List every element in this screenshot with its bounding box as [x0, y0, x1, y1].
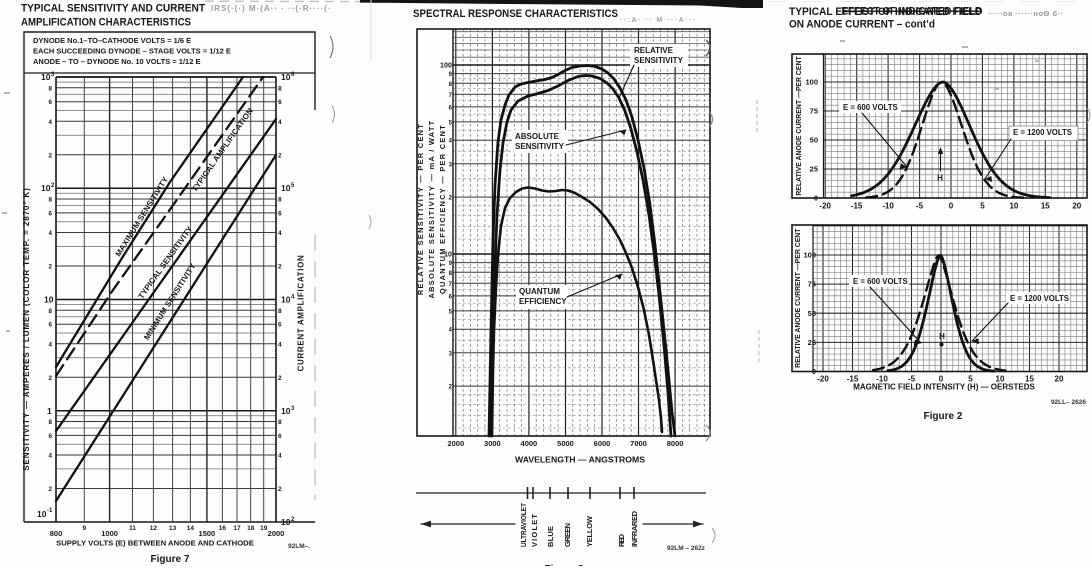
- svg-text:2: 2: [278, 264, 282, 271]
- svg-text:8: 8: [278, 197, 282, 204]
- svg-text:2000: 2000: [447, 439, 464, 448]
- svg-text:CURRENT AMPLIFICATION: CURRENT AMPLIFICATION: [297, 255, 306, 372]
- svg-text:TYPICAL SENSITIVITY AND CURREN: TYPICAL SENSITIVITY AND CURRENT: [21, 3, 205, 15]
- svg-text:100: 100: [803, 251, 816, 260]
- svg-text:9: 9: [82, 525, 86, 532]
- svg-text:8000: 8000: [667, 439, 684, 448]
- svg-text:2: 2: [49, 264, 53, 271]
- svg-text:6: 6: [49, 210, 53, 217]
- svg-text:2: 2: [278, 375, 282, 382]
- svg-text:92LL– 2626: 92LL– 2626: [1051, 399, 1086, 406]
- svg-text:0: 0: [814, 194, 818, 203]
- svg-text:ABSOLUTE: ABSOLUTE: [515, 132, 560, 141]
- svg-text:-20: -20: [817, 375, 829, 384]
- svg-text:ON ANODE CURRENT – cont’d: ON ANODE CURRENT – cont’d: [789, 19, 935, 31]
- svg-text:4: 4: [278, 453, 282, 460]
- svg-text:2000: 2000: [268, 529, 285, 538]
- svg-text:-10: -10: [882, 202, 894, 211]
- svg-text:ABSOLUTE SENSITIVITY — mA /: ABSOLUTE SENSITIVITY — mA / WATT: [427, 119, 436, 298]
- svg-text:8: 8: [49, 308, 53, 315]
- svg-text:17: 17: [233, 525, 241, 532]
- svg-text:10: 10: [281, 183, 291, 193]
- svg-text:2: 2: [49, 152, 53, 159]
- svg-text:RELATIVE SENSITIVITY — PER: RELATIVE SENSITIVITY — PER CENT: [416, 123, 425, 295]
- svg-text:RELATIVE: RELATIVE: [634, 46, 674, 55]
- svg-text:10: 10: [44, 295, 54, 305]
- svg-text:DYNODE No.1–TO–CATHODE VOLTS: DYNODE No.1–TO–CATHODE VOLTS = 1/6 E: [33, 36, 191, 45]
- svg-text:6: 6: [49, 433, 53, 440]
- svg-text:E = 1200 VOLTS: E = 1200 VOLTS: [1010, 294, 1069, 303]
- svg-text:-15: -15: [851, 202, 863, 211]
- svg-text:8: 8: [49, 85, 53, 92]
- svg-text:75: 75: [810, 107, 818, 116]
- svg-text:6: 6: [278, 322, 282, 329]
- svg-text:EFFICIENCY: EFFICIENCY: [519, 297, 567, 306]
- svg-text:4: 4: [278, 341, 282, 348]
- svg-text:8: 8: [278, 419, 282, 426]
- svg-text:4: 4: [49, 341, 53, 348]
- svg-text:15: 15: [1041, 202, 1050, 211]
- svg-text:25: 25: [810, 165, 818, 174]
- svg-text:-5: -5: [916, 202, 924, 211]
- svg-text:19: 19: [260, 525, 268, 532]
- svg-text:SENSITIVITY: SENSITIVITY: [634, 56, 684, 65]
- svg-text:H: H: [939, 332, 945, 341]
- svg-text:20: 20: [1055, 375, 1064, 384]
- svg-text:4000: 4000: [521, 439, 538, 448]
- svg-text:ULTRAVIOLET: ULTRAVIOLET: [519, 503, 528, 547]
- svg-text:5: 5: [980, 202, 985, 211]
- svg-text:10: 10: [1009, 202, 1018, 211]
- svg-text:6: 6: [278, 433, 282, 440]
- svg-text:RELATIVE ANODE CURRENT —PER CE: RELATIVE ANODE CURRENT —PER CENT: [795, 228, 802, 368]
- svg-text:0: 0: [949, 202, 954, 211]
- svg-text:10: 10: [281, 406, 291, 416]
- svg-text:25: 25: [808, 338, 816, 347]
- svg-text:8: 8: [49, 419, 53, 426]
- svg-text:·····оя ······ноΘ б··: ·····оя ······ноΘ б··: [988, 9, 1064, 18]
- svg-text:YELLOW: YELLOW: [585, 515, 594, 547]
- svg-text:ANODE – TO – DYNODE No. 10 V: ANODE – TO – DYNODE No. 10 VOLTS = 1/12 …: [33, 57, 200, 66]
- svg-text:10: 10: [281, 72, 291, 82]
- svg-text:1000: 1000: [101, 529, 118, 538]
- svg-text:4: 4: [278, 119, 282, 126]
- svg-text:11: 11: [129, 525, 136, 532]
- svg-text:10: 10: [41, 72, 51, 82]
- svg-text:4: 4: [278, 230, 282, 237]
- svg-text:0: 0: [812, 367, 816, 376]
- svg-text:8: 8: [49, 197, 53, 204]
- svg-text:··:A· ·· M ···A···: ··:A· ·· M ···A···: [620, 17, 697, 24]
- svg-text:3000: 3000: [484, 439, 501, 448]
- svg-text:2: 2: [49, 375, 53, 382]
- svg-text:13: 13: [169, 525, 177, 532]
- svg-text:E = 1200 VOLTS: E = 1200 VOLTS: [1013, 128, 1072, 137]
- svg-text:16: 16: [219, 525, 227, 532]
- svg-text:2: 2: [278, 152, 282, 159]
- svg-text:BLUE: BLUE: [546, 526, 555, 547]
- svg-text:1: 1: [47, 406, 52, 416]
- svg-text:4: 4: [49, 119, 53, 126]
- svg-text:Figure 7: Figure 7: [151, 554, 190, 565]
- svg-text:6: 6: [278, 210, 282, 217]
- svg-text:-1: -1: [47, 508, 53, 514]
- svg-text:WAVELENGTH — ANGSTROMS: WAVELENGTH — ANGSTROMS: [515, 455, 645, 465]
- svg-text:6: 6: [278, 99, 282, 106]
- svg-text:H: H: [937, 174, 943, 183]
- svg-text:EACH SUCCEEDING DYNODE – STA: EACH SUCCEEDING DYNODE – STAGE VOLTS = 1…: [33, 47, 231, 56]
- svg-text:8: 8: [278, 85, 282, 92]
- svg-text:5000: 5000: [557, 439, 574, 448]
- svg-text:2: 2: [278, 486, 282, 493]
- svg-text:92LM–.: 92LM–.: [288, 543, 310, 550]
- svg-text:7000: 7000: [630, 439, 647, 448]
- svg-text:RED: RED: [617, 533, 626, 547]
- svg-text:2: 2: [49, 486, 53, 493]
- svg-text:10: 10: [37, 509, 47, 519]
- svg-text:100: 100: [440, 61, 452, 70]
- svg-text:20: 20: [1072, 202, 1081, 211]
- svg-text:SENSITIVITY — AMPERES / LUMEN: SENSITIVITY — AMPERES / LUMEN (COLOR TEM…: [22, 187, 31, 470]
- svg-text:4: 4: [49, 453, 53, 460]
- svg-text:SUPPLY VOLTS (E) BETWEEN AN: SUPPLY VOLTS (E) BETWEEN ANODE AND CATHO…: [56, 539, 254, 548]
- svg-text:18: 18: [247, 525, 255, 532]
- svg-text:100: 100: [805, 78, 818, 87]
- svg-text:92LM – 262z: 92LM – 262z: [667, 545, 706, 552]
- svg-text:50: 50: [810, 136, 818, 145]
- svg-text:E = 600 VOLTS: E = 600 VOLTS: [853, 277, 908, 286]
- svg-text:6: 6: [49, 322, 53, 329]
- svg-text:RELATIVE ANODE CURRENT —PER CE: RELATIVE ANODE CURRENT —PER CENT: [796, 56, 803, 196]
- svg-text:SENSITIVITY: SENSITIVITY: [515, 142, 565, 151]
- svg-text:INFRARED: INFRARED: [630, 510, 639, 547]
- svg-text:75: 75: [808, 280, 816, 289]
- svg-text:Figure 2: Figure 2: [924, 411, 963, 422]
- svg-text:6000: 6000: [594, 439, 611, 448]
- svg-text:10: 10: [281, 295, 291, 305]
- svg-text:SPECTRAL RESPONSE CHARACTERIST: SPECTRAL RESPONSE CHARACTERISTICS: [413, 8, 618, 20]
- svg-text:QUANTUM: QUANTUM: [519, 287, 560, 296]
- svg-text:1500: 1500: [199, 529, 216, 538]
- svg-text:GREEN: GREEN: [563, 523, 572, 547]
- svg-text:14: 14: [187, 525, 195, 532]
- svg-text:AMPLIFICATION CHARACTERISTICS: AMPLIFICATION CHARACTERISTICS: [21, 17, 191, 29]
- svg-text:50: 50: [808, 309, 816, 318]
- svg-text:12: 12: [150, 525, 158, 532]
- svg-text:-20: -20: [819, 202, 831, 211]
- svg-text:6: 6: [49, 99, 53, 106]
- svg-text:QUANTUM EFFICIENCY — PER: QUANTUM EFFICIENCY — PER CENT: [438, 124, 447, 294]
- svg-text:8: 8: [278, 308, 282, 315]
- svg-text:MAGNETIC FIELD INTENSITY (H): MAGNETIC FIELD INTENSITY (H) — OERSTEDS: [853, 383, 1035, 392]
- svg-text:10: 10: [41, 183, 51, 193]
- svg-text:VIOLET: VIOLET: [530, 514, 539, 547]
- svg-text:4: 4: [49, 230, 53, 237]
- svg-text:800: 800: [50, 529, 63, 538]
- svg-text:IRS(·(·) M·(A·· · ··(·R····(·: IRS(·(·) M·(A·· · ··(·R····(·: [211, 4, 332, 13]
- svg-text:10: 10: [281, 517, 291, 527]
- svg-text:E = 600 VOLTS: E = 600 VOLTS: [843, 103, 898, 112]
